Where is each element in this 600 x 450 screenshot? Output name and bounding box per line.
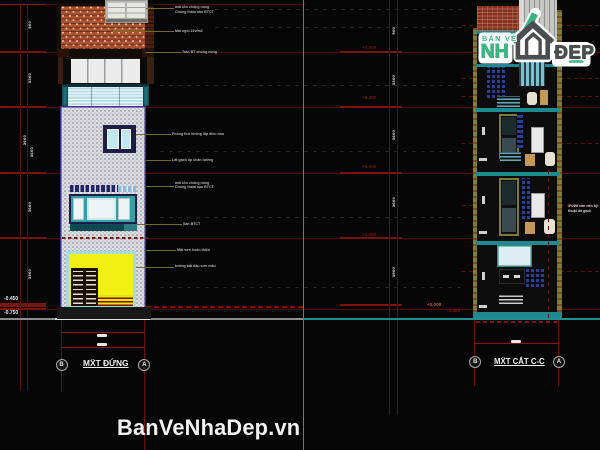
svg-text:ĐẸP: ĐẸP: [555, 41, 595, 62]
svg-text:NH: NH: [481, 41, 509, 63]
